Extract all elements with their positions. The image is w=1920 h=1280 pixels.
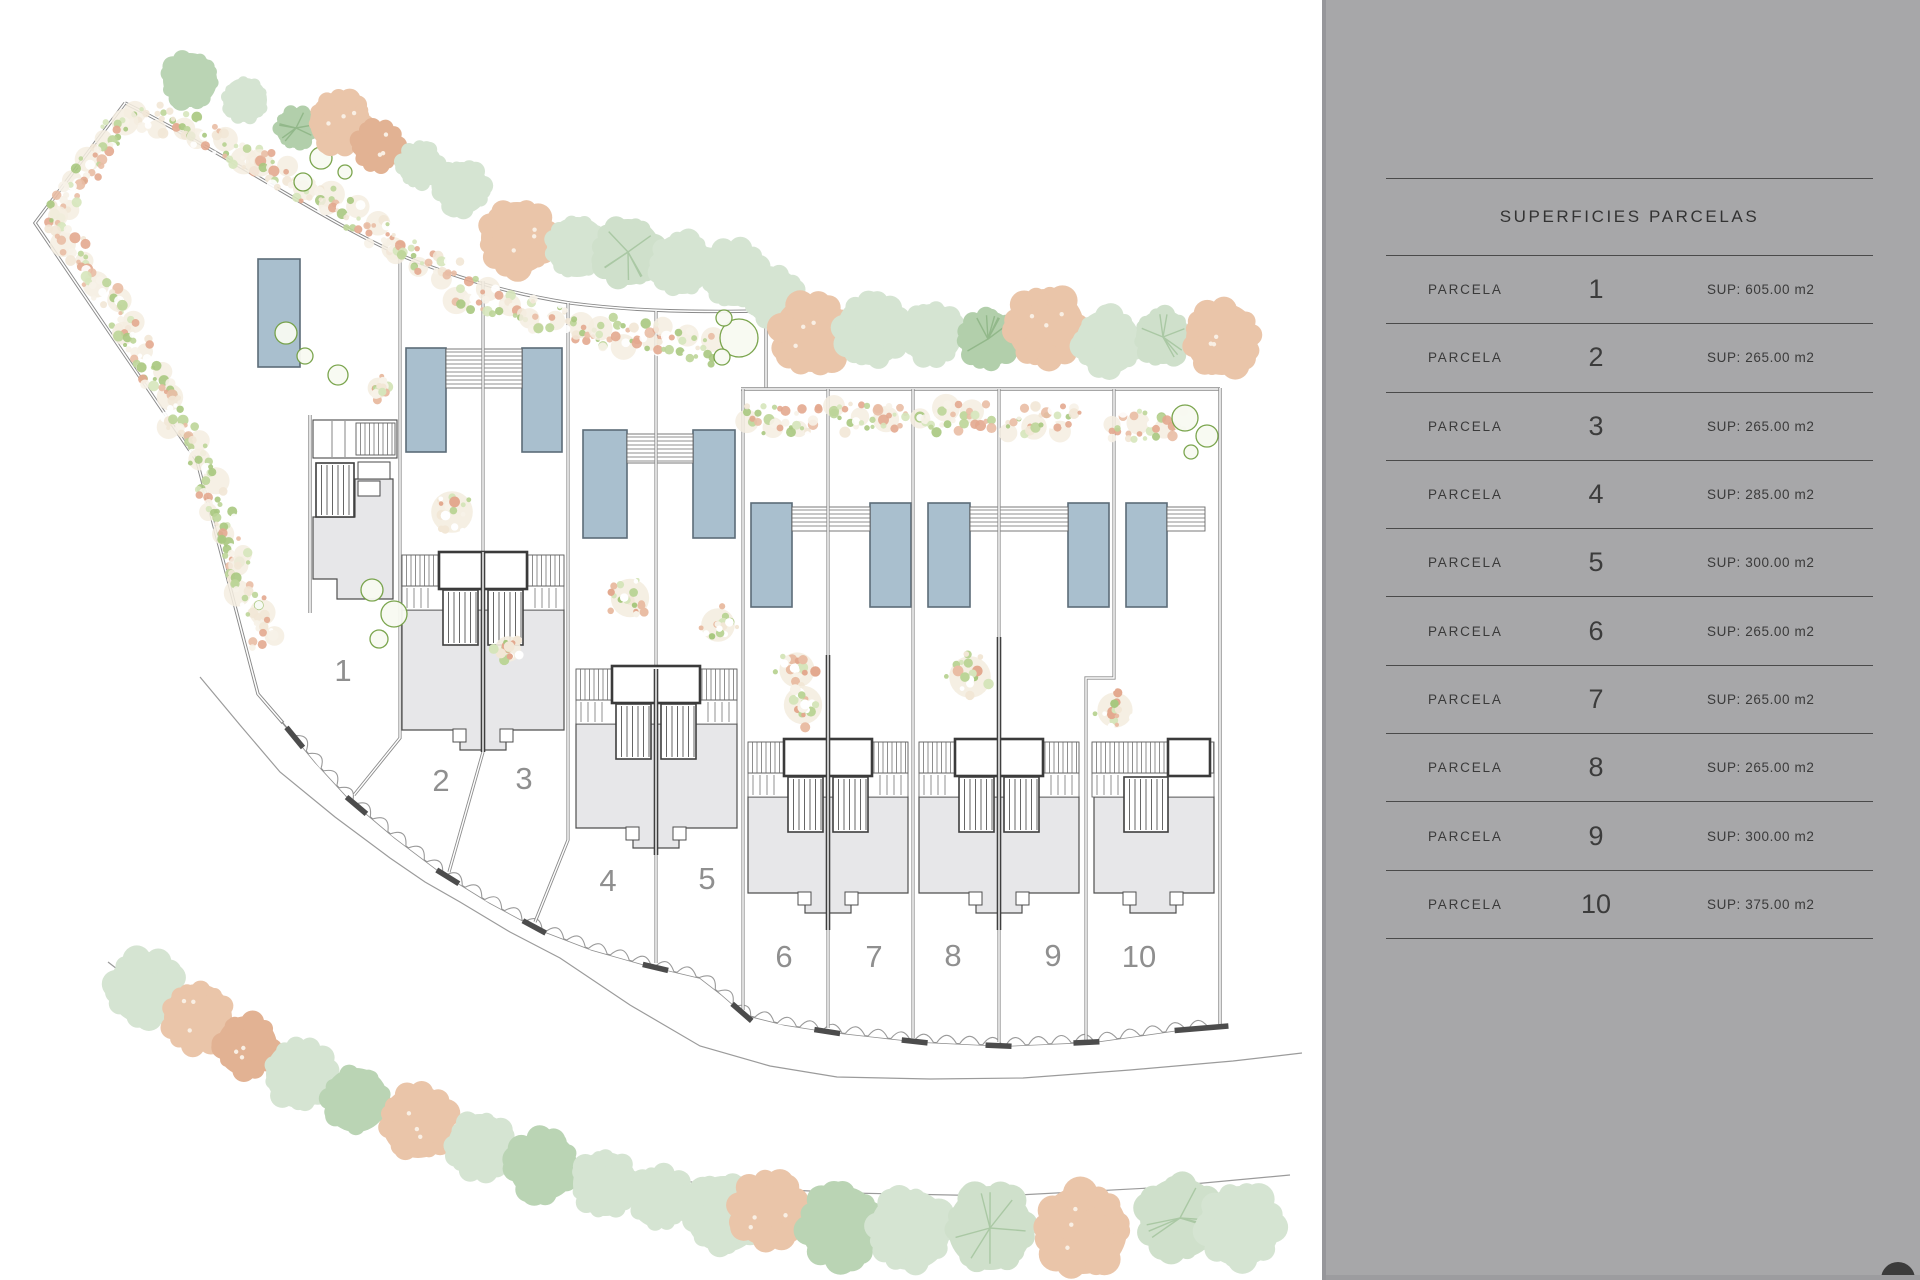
- row-surface-value: SUP: 265.00 m2: [1656, 419, 1873, 434]
- table-title: SUPERFICIES PARCELAS: [1386, 178, 1873, 256]
- row-surface-value: SUP: 265.00 m2: [1656, 692, 1873, 707]
- row-parcela-label: PARCELA: [1386, 760, 1536, 775]
- parcel-surface-table: SUPERFICIES PARCELAS PARCELA1SUP: 605.00…: [1386, 178, 1873, 939]
- panel-bottom-edge: [1326, 1275, 1920, 1280]
- row-parcela-label: PARCELA: [1386, 350, 1536, 365]
- row-parcel-number: 9: [1536, 821, 1656, 852]
- row-parcela-label: PARCELA: [1386, 897, 1536, 912]
- table-row: PARCELA3SUP: 265.00 m2: [1386, 393, 1873, 461]
- table-row: PARCELA8SUP: 265.00 m2: [1386, 734, 1873, 802]
- table-row: PARCELA5SUP: 300.00 m2: [1386, 529, 1873, 597]
- row-parcel-number: 10: [1536, 889, 1656, 920]
- row-parcela-label: PARCELA: [1386, 624, 1536, 639]
- row-parcela-label: PARCELA: [1386, 282, 1536, 297]
- row-parcel-number: 5: [1536, 547, 1656, 578]
- row-parcel-number: 7: [1536, 684, 1656, 715]
- row-parcela-label: PARCELA: [1386, 692, 1536, 707]
- row-parcela-label: PARCELA: [1386, 829, 1536, 844]
- parcel-label-6: 6: [775, 939, 792, 974]
- parcel-label-2: 2: [432, 763, 449, 798]
- table-row: PARCELA1SUP: 605.00 m2: [1386, 256, 1873, 324]
- row-surface-value: SUP: 300.00 m2: [1656, 555, 1873, 570]
- table-rows: PARCELA1SUP: 605.00 m2PARCELA2SUP: 265.0…: [1386, 256, 1873, 939]
- site-plan-page: 1 2 3 4 5 6 7 8 9 10 SUPERFICIES PARCELA…: [0, 0, 1920, 1280]
- table-row: PARCELA9SUP: 300.00 m2: [1386, 802, 1873, 870]
- parcel-label-10: 10: [1122, 939, 1156, 974]
- row-parcela-label: PARCELA: [1386, 419, 1536, 434]
- row-surface-value: SUP: 265.00 m2: [1656, 760, 1873, 775]
- table-row: PARCELA4SUP: 285.00 m2: [1386, 461, 1873, 529]
- row-surface-value: SUP: 605.00 m2: [1656, 282, 1873, 297]
- parcel-label-9: 9: [1044, 938, 1061, 973]
- table-row: PARCELA6SUP: 265.00 m2: [1386, 597, 1873, 665]
- row-surface-value: SUP: 300.00 m2: [1656, 829, 1873, 844]
- surface-table-panel: SUPERFICIES PARCELAS PARCELA1SUP: 605.00…: [1322, 0, 1920, 1280]
- row-parcel-number: 2: [1536, 342, 1656, 373]
- row-parcel-number: 6: [1536, 616, 1656, 647]
- plan-linework: [35, 50, 1302, 1279]
- row-parcel-number: 8: [1536, 752, 1656, 783]
- table-row: PARCELA7SUP: 265.00 m2: [1386, 666, 1873, 734]
- table-row: PARCELA10SUP: 375.00 m2: [1386, 871, 1873, 939]
- parcel-label-7: 7: [865, 939, 882, 974]
- parcel-label-1: 1: [334, 653, 351, 688]
- table-row: PARCELA2SUP: 265.00 m2: [1386, 324, 1873, 392]
- site-plan-drawing: 1 2 3 4 5 6 7 8 9 10: [0, 0, 1322, 1280]
- row-parcel-number: 4: [1536, 479, 1656, 510]
- parcel-label-4: 4: [599, 863, 616, 898]
- row-parcela-label: PARCELA: [1386, 487, 1536, 502]
- row-surface-value: SUP: 285.00 m2: [1656, 487, 1873, 502]
- row-surface-value: SUP: 265.00 m2: [1656, 624, 1873, 639]
- row-parcela-label: PARCELA: [1386, 555, 1536, 570]
- parcel-label-8: 8: [944, 938, 961, 973]
- parcel-label-3: 3: [515, 761, 532, 796]
- row-parcel-number: 3: [1536, 411, 1656, 442]
- hedge-planting: [44, 101, 1218, 732]
- row-parcel-number: 1: [1536, 274, 1656, 305]
- tree-planting: [102, 50, 1288, 1279]
- row-surface-value: SUP: 265.00 m2: [1656, 350, 1873, 365]
- row-surface-value: SUP: 375.00 m2: [1656, 897, 1873, 912]
- parcel-label-5: 5: [698, 861, 715, 896]
